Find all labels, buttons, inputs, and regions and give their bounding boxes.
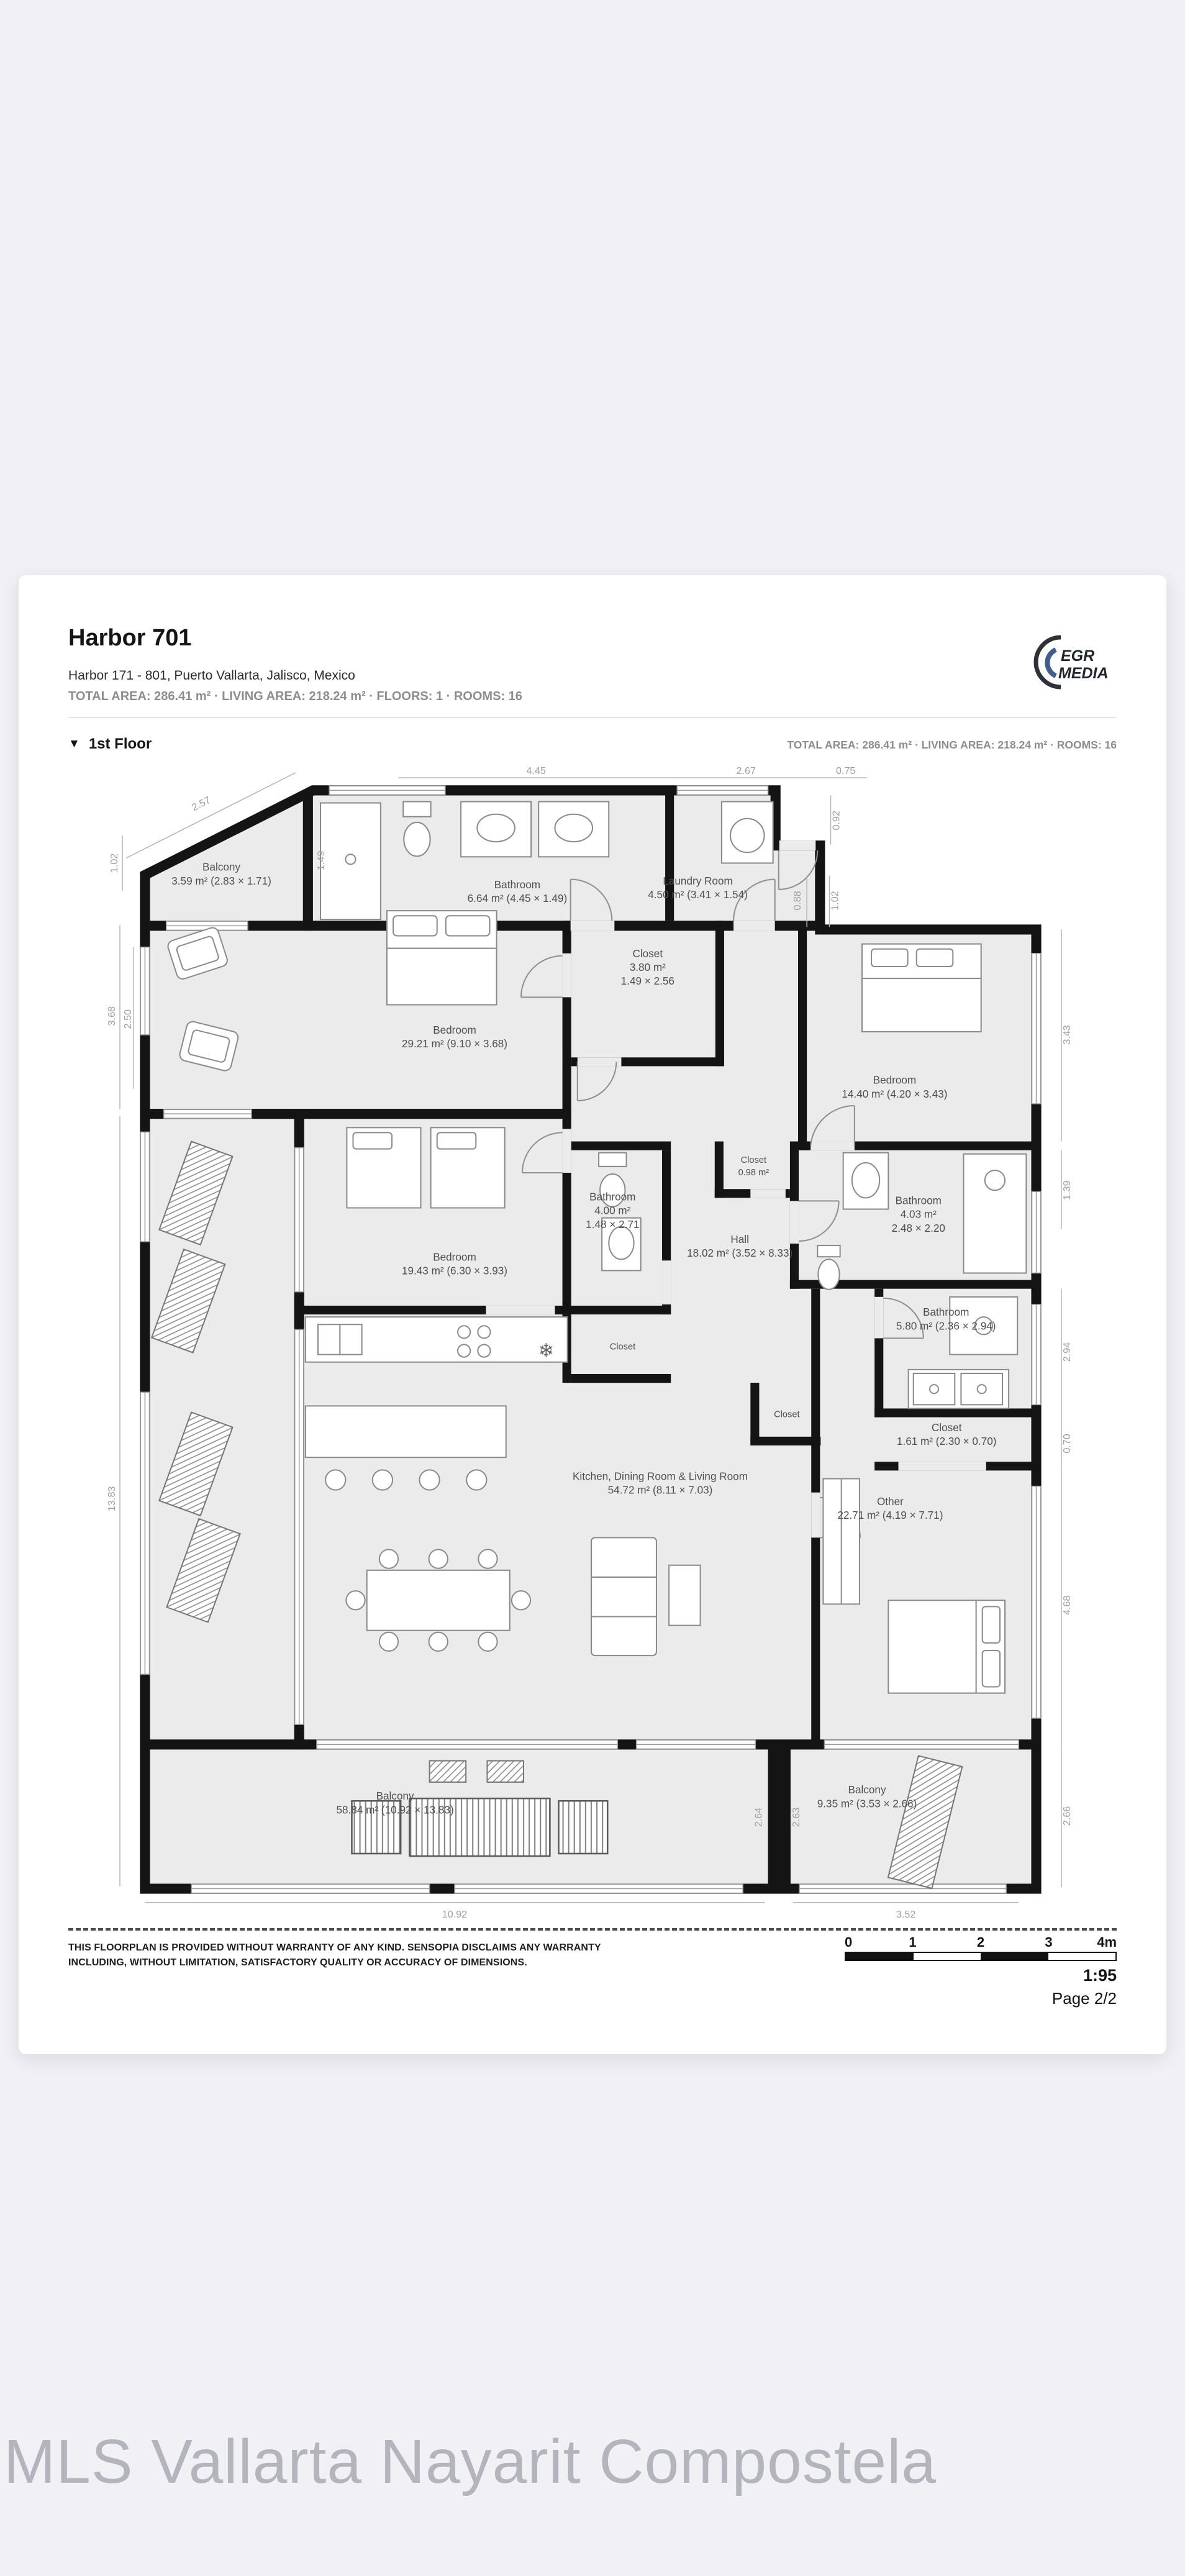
dimension-label: 2.63 [791,1808,802,1827]
svg-text:0.98 m²: 0.98 m² [738,1168,770,1178]
svg-text:22.71 m² (4.19 × 7.71): 22.71 m² (4.19 × 7.71) [837,1509,943,1521]
scale-tick: 0 [845,1934,852,1950]
kitchen-counter-icon: ❄ [306,1317,568,1362]
dimension-label: 0.92 [831,811,842,830]
scale-legend: 0 1 2 3 4m 1:95 Page 2/2 [845,1934,1117,2008]
dimension-label: 1.02 [830,891,841,910]
page-indicator: Page 2/2 [845,1989,1117,2008]
dimension-label: 2.64 [753,1808,764,1827]
floorplan-canvas: ❄ Balcony3.59 m² (2.83 × 1.71) Bathroom6… [58,765,1127,1922]
dimension-label: 3.52 [896,1909,915,1920]
footer-divider [68,1928,1117,1931]
svg-text:5.80 m² (2.36 × 2.94): 5.80 m² (2.36 × 2.94) [896,1319,996,1332]
svg-text:6.64 m² (4.45 × 1.49): 6.64 m² (4.45 × 1.49) [468,892,568,904]
svg-text:4.50 m² (3.41 × 1.54): 4.50 m² (3.41 × 1.54) [648,888,748,901]
svg-text:18.02 m² (3.52 × 8.33): 18.02 m² (3.52 × 8.33) [687,1247,792,1259]
scale-bar-segment [1048,1953,1116,1960]
svg-text:Closet: Closet [932,1421,962,1434]
scale-tick-labels: 0 1 2 3 4m [845,1934,1117,1952]
dimension-label: 10.92 [442,1909,467,1920]
svg-text:Bathroom: Bathroom [589,1190,635,1203]
disclaimer-line-2: INCLUDING, WITHOUT LIMITATION, SATISFACT… [68,1955,677,1970]
toilet-icon [403,802,430,857]
dimension-label: 0.75 [836,765,855,776]
egr-media-logo-icon: EGR MEDIA [1020,630,1113,694]
bed-twin-icon [431,1127,505,1208]
page-title: Harbor 701 [68,625,192,652]
scale-tick: 2 [977,1934,984,1950]
svg-text:Kitchen, Dining Room & Living: Kitchen, Dining Room & Living Room [573,1470,748,1483]
property-address: Harbor 171 - 801, Puerto Vallarta, Jalis… [68,668,355,683]
svg-text:4.00 m²: 4.00 m² [594,1204,630,1217]
svg-text:Closet: Closet [774,1410,799,1420]
dimension-label: 4.45 [526,765,545,776]
dimension-label: 1.39 [1061,1181,1073,1200]
logo-text-line2: MEDIA [1058,665,1109,682]
dimension-label: 4.68 [1061,1596,1073,1615]
dimension-label: 2.57 [190,794,212,813]
dimension-label: 2.66 [1061,1806,1073,1826]
floorplan-document: Harbor 701 Harbor 171 - 801, Puerto Vall… [19,575,1166,2054]
svg-text:14.40 m² (4.20 × 3.43): 14.40 m² (4.20 × 3.43) [842,1088,947,1100]
scale-bar [845,1952,1117,1961]
phone-screen: Harbor 701 Harbor 171 - 801, Puerto Vall… [0,0,1185,2576]
svg-text:1.49 × 2.56: 1.49 × 2.56 [621,975,674,987]
floorplan-svg: ❄ Balcony3.59 m² (2.83 × 1.71) Bathroom6… [58,765,1127,1922]
dimension-label: 3.43 [1061,1025,1073,1044]
svg-text:4.03 m²: 4.03 m² [901,1208,937,1221]
dimension-label: 0.70 [1061,1434,1073,1453]
svg-text:Bedroom: Bedroom [433,1024,476,1036]
shower-icon [963,1154,1026,1273]
svg-text:Bedroom: Bedroom [873,1074,917,1086]
bed-twin-icon [347,1127,420,1208]
dimension-label: 0.88 [792,891,803,910]
scale-tick: 3 [1045,1934,1052,1950]
disclaimer-text: THIS FLOORPLAN IS PROVIDED WITHOUT WARRA… [68,1941,677,1970]
svg-text:Balcony: Balcony [202,861,240,873]
dimension-label: 3.68 [106,1006,117,1026]
svg-text:Other: Other [877,1495,904,1508]
dimension-label: 2.67 [737,765,756,776]
scale-bar-segment [846,1953,914,1960]
scale-ratio: 1:95 [845,1966,1117,1985]
shower-icon [320,803,381,920]
svg-text:Balcony: Balcony [376,1790,414,1802]
disclaimer-line-1: THIS FLOORPLAN IS PROVIDED WITHOUT WARRA… [68,1941,677,1955]
double-sink-icon [909,1370,1009,1409]
logo-text-line1: EGR [1061,647,1094,665]
svg-text:Balcony: Balcony [848,1783,886,1796]
bed-double-icon [862,944,981,1032]
header-divider [68,717,1117,718]
svg-text:Closet: Closet [633,947,663,960]
svg-text:Laundry Room: Laundry Room [663,875,732,887]
dimension-label: 13.83 [106,1486,117,1511]
fridge-snowflake-icon: ❄ [538,1341,554,1362]
dimension-label: 1.02 [109,853,120,873]
dimension-label: 1.49 [316,851,327,870]
dimension-label: 2.50 [122,1009,134,1029]
floor-section-header: ▼1st Floor TOTAL AREA: 286.41 m² · LIVIN… [68,735,1117,758]
svg-text:2.48 × 2.20: 2.48 × 2.20 [892,1222,945,1234]
sink-icon [843,1153,889,1209]
scale-tick: 4m [1097,1934,1117,1950]
sink-icon [538,802,609,857]
area-summary: TOTAL AREA: 286.41 m² · LIVING AREA: 218… [68,690,522,704]
scale-bar-segment [981,1953,1048,1960]
bed-double-icon [387,911,497,1004]
bed-double-icon [888,1600,1005,1693]
toilet-icon [817,1245,840,1290]
svg-text:Closet: Closet [610,1342,635,1352]
floor-section-title: 1st Floor [89,735,152,752]
scale-bar-segment [914,1953,981,1960]
svg-text:9.35 m² (3.53 × 2.66): 9.35 m² (3.53 × 2.66) [817,1797,917,1809]
watermark: MLS Vallarta Nayarit Compostela [4,2426,1185,2498]
svg-text:58.84 m² (10.92 × 13.83): 58.84 m² (10.92 × 13.83) [337,1803,454,1816]
svg-text:19.43 m² (6.30 × 3.93): 19.43 m² (6.30 × 3.93) [402,1264,507,1277]
sink-icon [461,802,531,857]
svg-text:3.59 m² (2.83 × 1.71): 3.59 m² (2.83 × 1.71) [171,875,271,887]
wardrobe-icon [823,1478,860,1604]
svg-text:54.72 m² (8.11 × 7.03): 54.72 m² (8.11 × 7.03) [608,1484,713,1496]
svg-text:Bathroom: Bathroom [923,1306,969,1318]
svg-text:Bathroom: Bathroom [896,1194,942,1206]
svg-text:29.21 m² (9.10 × 3.68): 29.21 m² (9.10 × 3.68) [402,1037,507,1050]
svg-text:1.48 × 2.71: 1.48 × 2.71 [586,1218,639,1231]
svg-text:1.61 m² (2.30 × 0.70): 1.61 m² (2.30 × 0.70) [897,1435,997,1447]
washer-icon [722,802,773,863]
chevron-down-icon: ▼ [68,737,80,750]
dimension-label: 2.94 [1061,1342,1073,1362]
svg-text:Bathroom: Bathroom [494,878,540,891]
svg-text:Closet: Closet [741,1155,766,1165]
scale-tick: 1 [909,1934,916,1950]
svg-text:Hall: Hall [730,1233,749,1245]
room-label-closet-a: Closet [610,1342,635,1352]
svg-text:3.80 m²: 3.80 m² [630,961,666,973]
floor-section-meta: TOTAL AREA: 286.41 m² · LIVING AREA: 218… [787,739,1117,752]
svg-text:Bedroom: Bedroom [433,1250,476,1263]
room-label-closet-b: Closet [774,1410,799,1420]
floor-section-toggle[interactable]: ▼1st Floor [68,735,152,753]
